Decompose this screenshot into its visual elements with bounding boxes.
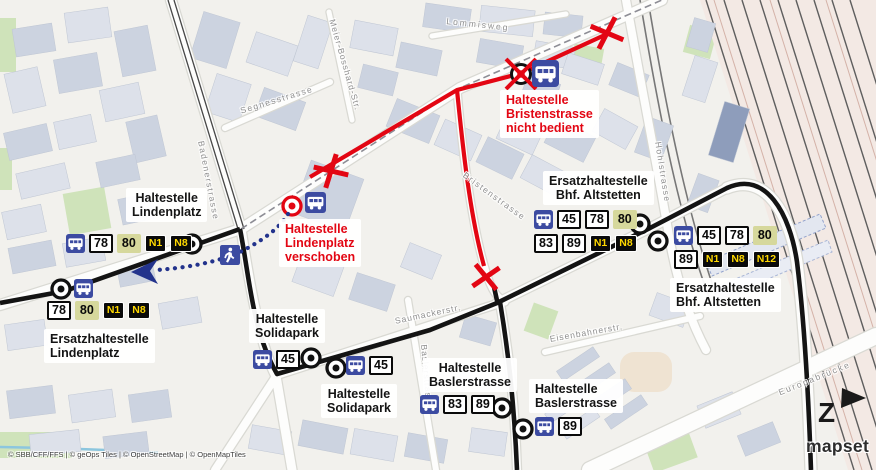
route-badge: N1	[590, 235, 611, 252]
mapset-logo: mapset	[806, 436, 869, 457]
route-badge: 80	[753, 226, 777, 245]
label-haltestelle-baslerstrasse-1: Haltestelle Baslerstrasse	[423, 358, 517, 392]
bus-icon	[305, 192, 326, 213]
stop-group-solidapark-1: 45	[253, 350, 300, 369]
closed-stop-icon-bristenstrasse	[532, 60, 559, 87]
route-badge: 83	[443, 395, 467, 414]
bus-icon	[66, 234, 85, 253]
bus-icon	[346, 356, 365, 375]
bus-icon	[674, 226, 693, 245]
label-haltestelle-solidapark-1: Haltestelle Solidapark	[249, 309, 325, 343]
north-arrow-label: Z	[818, 397, 835, 428]
route-badge: 83	[534, 234, 558, 253]
label-ersatzhaltestelle-bhf-altstetten-2: Ersatzhaltestelle Bhf. Altstetten	[670, 278, 781, 312]
stop-group-solidapark-2: 45	[346, 356, 393, 375]
route-badge: N1	[103, 302, 124, 319]
stop-group-bhf-altstetten-2a: 457880	[674, 226, 777, 245]
route-badge: N1	[702, 251, 723, 268]
route-badge: 78	[47, 301, 71, 320]
route-badge: N8	[128, 302, 149, 319]
route-badge: 89	[471, 395, 495, 414]
label-haltestelle-solidapark-2: Haltestelle Solidapark	[321, 384, 397, 418]
stop-group-bhf-altstetten-1a: 457880	[534, 210, 637, 229]
route-badge: 45	[557, 210, 581, 229]
route-badge: 45	[697, 226, 721, 245]
stop-group-lindenplatz: 7880N1N8	[66, 234, 192, 253]
route-badge: 89	[558, 417, 582, 436]
route-badge: 80	[75, 301, 99, 320]
route-badge: 78	[585, 210, 609, 229]
stop-group-ersatz-lindenplatz: 7880N1N8	[47, 301, 150, 320]
bus-icon	[74, 279, 93, 298]
pedestrian-icon	[220, 245, 240, 265]
bus-icon	[534, 210, 553, 229]
bus-icon	[253, 350, 272, 369]
transit-diversion-map: Haltestelle LindenplatzErsatzhaltestelle…	[0, 0, 876, 470]
notice-lindenplatz-verschoben: Haltestelle Lindenplatz verschoben	[279, 219, 361, 267]
label-haltestelle-baslerstrasse-2: Haltestelle Baslerstrasse	[529, 379, 623, 413]
route-badge: N8	[615, 235, 636, 252]
route-badge: 78	[725, 226, 749, 245]
route-badge: N8	[727, 251, 748, 268]
route-badge: 89	[674, 250, 698, 269]
stop-group-bhf-altstetten-1b: 8389N1N8	[534, 234, 637, 253]
bus-icon	[535, 417, 554, 436]
north-arrow-icon: Z	[814, 382, 870, 428]
route-badge: 45	[276, 350, 300, 369]
route-badge: 78	[89, 234, 113, 253]
bus-icon	[420, 395, 439, 414]
relocated-stop-marker	[283, 197, 301, 215]
notice-bristenstrasse-nicht-bedient: Haltestelle Bristenstrasse nicht bedient	[500, 90, 599, 138]
route-badge: 45	[369, 356, 393, 375]
attribution: © SBB/CFF/FFS | © geOps Tiles | © OpenSt…	[8, 450, 246, 459]
route-badge: N1	[145, 235, 166, 252]
route-badge: 80	[117, 234, 141, 253]
route-badge: 89	[562, 234, 586, 253]
route-badge: N12	[753, 251, 780, 268]
relocated-stop-icon	[305, 192, 326, 213]
label-haltestelle-lindenplatz: Haltestelle Lindenplatz	[126, 188, 207, 222]
stop-group-bhf-altstetten-2b: 89N1N8N12	[674, 250, 780, 269]
stop-group-baslerstrasse-1: 8389	[420, 395, 495, 414]
route-badge: N8	[170, 235, 191, 252]
label-ersatzhaltestelle-bhf-altstetten-1: Ersatzhaltestelle Bhf. Altstetten	[543, 171, 654, 205]
bus-icon	[532, 60, 559, 87]
label-ersatzhaltestelle-lindenplatz: Ersatzhaltestelle Lindenplatz	[44, 329, 155, 363]
stop-group-ersatz-lindenplatz-icon	[74, 279, 93, 298]
route-badge: 80	[613, 210, 637, 229]
stop-group-baslerstrasse-2: 89	[535, 417, 582, 436]
